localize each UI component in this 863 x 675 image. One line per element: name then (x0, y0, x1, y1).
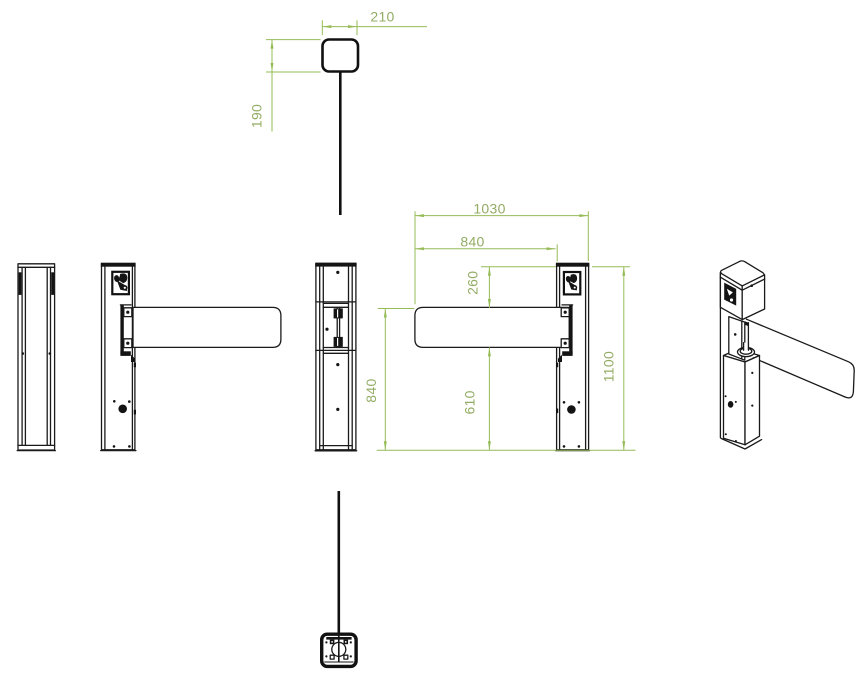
svg-text:1100: 1100 (600, 351, 616, 382)
svg-text:190: 190 (249, 104, 265, 128)
svg-text:610: 610 (461, 390, 477, 414)
svg-text:840: 840 (363, 378, 379, 402)
svg-text:1030: 1030 (473, 201, 505, 217)
svg-text:210: 210 (370, 9, 394, 25)
svg-text:840: 840 (460, 233, 484, 249)
svg-text:260: 260 (465, 271, 481, 295)
